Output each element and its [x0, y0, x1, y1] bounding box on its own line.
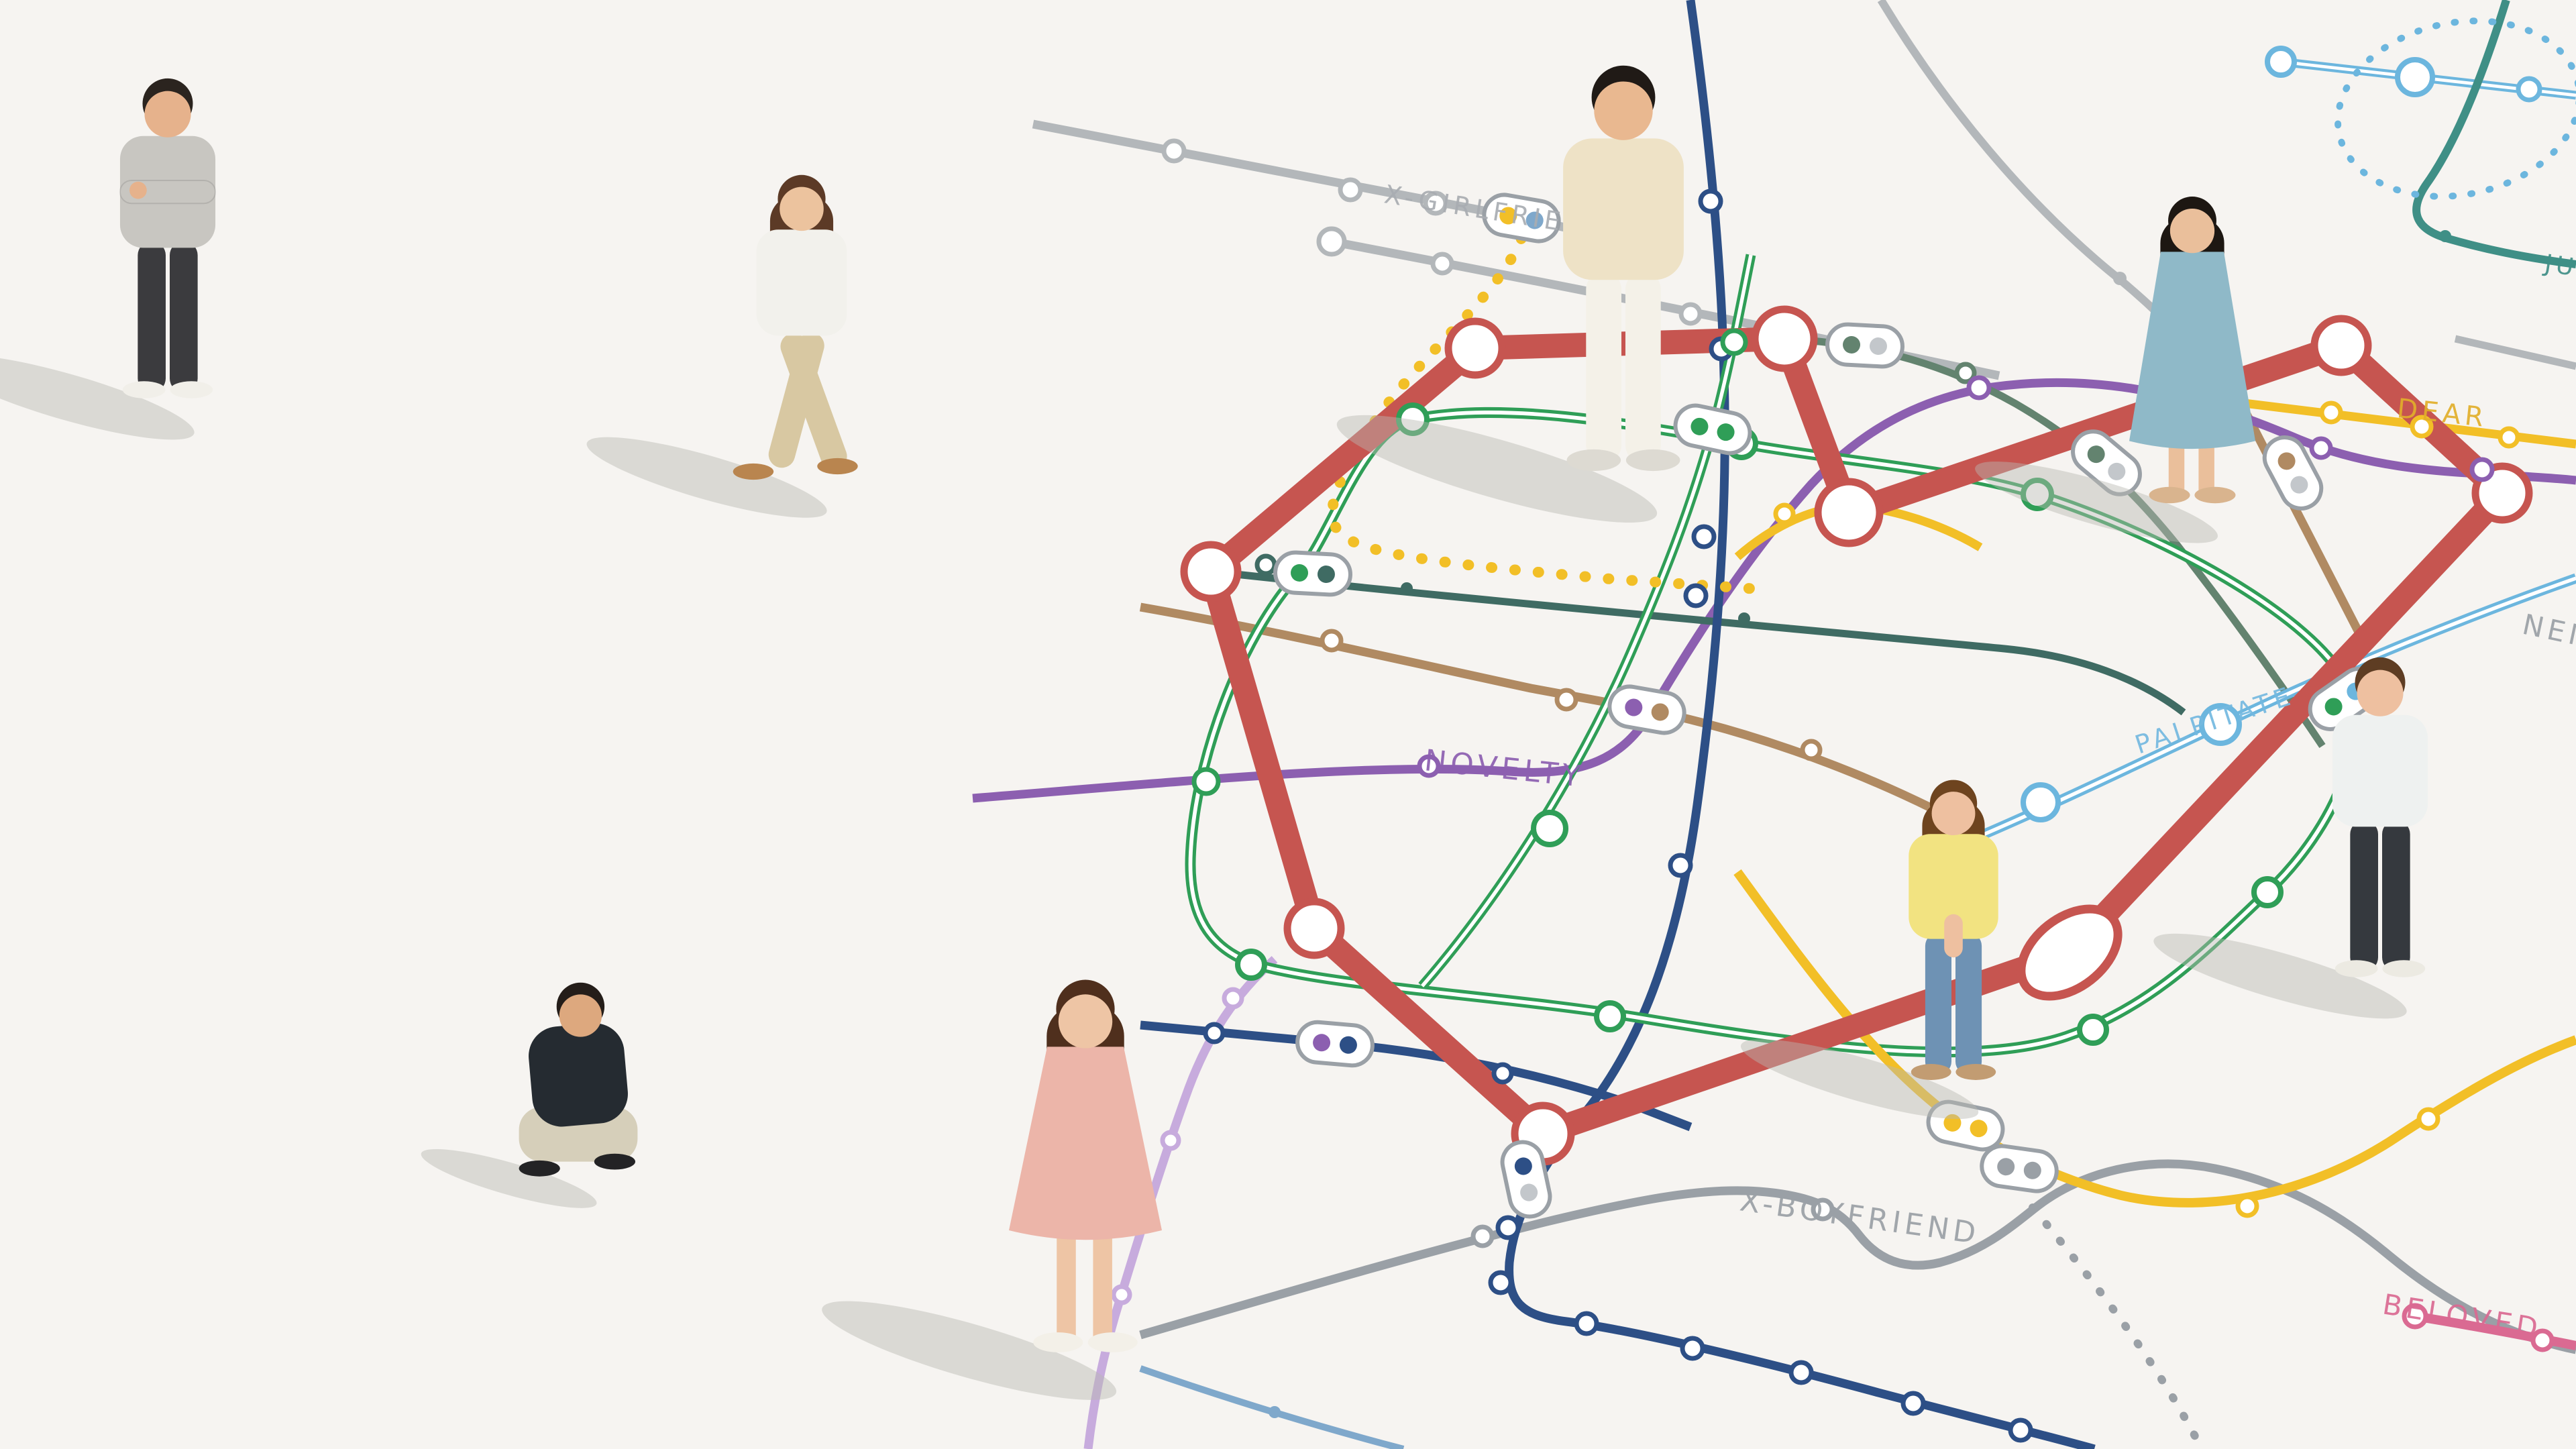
station: [2419, 1110, 2438, 1128]
person-head: [1059, 994, 1112, 1048]
interchange-pill: [1607, 684, 1688, 737]
poster: X-GIRLFRIEND NOVELTY PALPITATE DEAR X-BO…: [0, 0, 2576, 1449]
station-dot: [2439, 230, 2451, 242]
station: [2080, 1016, 2106, 1043]
station: [1498, 1218, 1518, 1238]
station: [1755, 309, 1814, 368]
person-shoe: [1911, 1064, 1951, 1080]
label-novelty: NOVELTY: [1423, 743, 1586, 794]
person-leg: [2350, 820, 2378, 971]
station-dot: [1738, 612, 1750, 625]
person-shoe: [594, 1154, 635, 1170]
person-leg: [1625, 272, 1661, 463]
label-fragment-nei: NEI: [2520, 608, 2576, 652]
person-torso: [1563, 138, 1684, 280]
station: [1163, 1132, 1179, 1148]
station: [1433, 254, 1452, 273]
person-man-arms-crossed: [0, 78, 215, 455]
person-shoe: [733, 464, 773, 480]
line-dotted-ring: [2321, 0, 2576, 218]
person-woman-walking: [581, 175, 858, 533]
person-leg: [1586, 272, 1621, 463]
station: [1491, 1273, 1511, 1293]
interchange-station: [1979, 1143, 2059, 1193]
station: [1494, 1065, 1511, 1082]
station: [1257, 556, 1275, 574]
person-head: [1594, 81, 1652, 140]
interchange-pill: [1979, 1143, 2059, 1193]
station: [1694, 527, 1714, 547]
station: [1534, 812, 1566, 845]
station-dot: [1269, 1406, 1281, 1418]
label-fragment-ju: JU: [2542, 250, 2576, 282]
station: [1597, 1003, 1623, 1030]
person-head: [1932, 792, 1976, 835]
line-yellow-lower: [1737, 872, 2576, 1203]
interchange-station: [1672, 402, 1754, 457]
station: [1969, 378, 1989, 398]
station: [1686, 586, 1706, 606]
person-shadow: [814, 1283, 1123, 1418]
label-beloved: BELOVED: [2380, 1287, 2544, 1345]
station: [1224, 989, 1242, 1007]
interchange-station: [1296, 1020, 1375, 1067]
person-woman-blue-dress: [1969, 197, 2255, 558]
station: [1340, 180, 1360, 200]
station: [1319, 229, 1344, 254]
person-leg: [1057, 1224, 1076, 1344]
person-shoe: [1567, 449, 1621, 471]
station: [2322, 403, 2341, 422]
station: [1803, 741, 1820, 759]
person-shoe: [2149, 487, 2190, 503]
subway-map-canvas: X-GIRLFRIEND NOVELTY PALPITATE DEAR X-BO…: [0, 0, 2576, 1449]
person-shoe: [519, 1161, 560, 1177]
station: [1681, 305, 1700, 323]
person-hands-clasped: [1944, 914, 1963, 957]
interchange-station: [1827, 323, 1904, 368]
interchange-station: [1275, 551, 1352, 596]
station: [2238, 1197, 2257, 1216]
person-leg: [138, 241, 166, 392]
station: [1557, 690, 1576, 709]
person-head: [780, 187, 824, 231]
station: [1238, 951, 1265, 978]
station: [1448, 321, 1502, 375]
station: [2312, 439, 2330, 458]
line-gray-right: [2455, 339, 2576, 366]
person-torso: [757, 229, 847, 335]
station: [1791, 1362, 1811, 1383]
interchange-pill: [1275, 551, 1352, 596]
person-torso: [526, 1021, 630, 1129]
line-gray-dotted: [2033, 1207, 2202, 1449]
line-teal: [2416, 0, 2576, 264]
station: [1194, 769, 1218, 794]
person-shoe: [170, 381, 213, 398]
person-head: [2357, 670, 2403, 716]
station: [1287, 902, 1341, 955]
station: [1682, 1338, 1703, 1358]
station: [1205, 1024, 1223, 1042]
station: [2518, 78, 2540, 100]
person-man-crouching: [417, 983, 637, 1220]
person-shoe: [1033, 1332, 1083, 1352]
interchange-pill: [1827, 323, 1904, 368]
station: [1903, 1393, 1923, 1413]
person-shoe: [2194, 487, 2235, 503]
person-shoe: [817, 458, 857, 474]
station: [2472, 460, 2492, 480]
person-leg: [170, 241, 198, 392]
station: [2254, 879, 2281, 906]
line-x-boyfriend: [1140, 1164, 2576, 1350]
station: [2267, 48, 2294, 75]
station: [2314, 319, 2368, 372]
interchange-station: [1607, 684, 1688, 737]
interchange-pill: [1672, 402, 1754, 457]
station: [1670, 855, 1690, 875]
station: [1701, 191, 1721, 211]
person-shoe: [2335, 960, 2378, 977]
person-leg: [1093, 1224, 1112, 1344]
station: [1576, 1313, 1597, 1334]
person-hand: [129, 182, 147, 199]
person-dress: [1009, 1046, 1162, 1240]
person-shoe: [1626, 449, 1680, 471]
person-torso: [2332, 715, 2428, 827]
station: [2010, 1420, 2031, 1440]
station: [1114, 1287, 1130, 1303]
person-head: [559, 994, 602, 1036]
station-dot: [2113, 272, 2127, 285]
person-shoe: [1955, 1064, 1996, 1080]
station: [1322, 631, 1341, 650]
person-head: [144, 91, 191, 138]
person-shoe: [2382, 960, 2425, 977]
person-woman-yellow-top: [1735, 780, 1998, 1134]
station: [1473, 1227, 1492, 1246]
station: [2398, 60, 2432, 95]
person-head: [2170, 209, 2214, 253]
station: [1818, 482, 1880, 543]
station: [1164, 141, 1184, 161]
interchange-pill: [1296, 1020, 1375, 1067]
person-man-cream-sweater: [1329, 66, 1684, 543]
person-leg: [2382, 820, 2410, 971]
station-dot: [1401, 582, 1413, 594]
station: [2023, 785, 2058, 820]
station: [1184, 545, 1238, 598]
person-shoe: [123, 381, 166, 398]
station: [1776, 505, 1793, 523]
person-shoe: [1088, 1332, 1138, 1352]
station: [1723, 331, 1746, 354]
person-dress: [2129, 252, 2255, 449]
station: [2500, 429, 2518, 446]
